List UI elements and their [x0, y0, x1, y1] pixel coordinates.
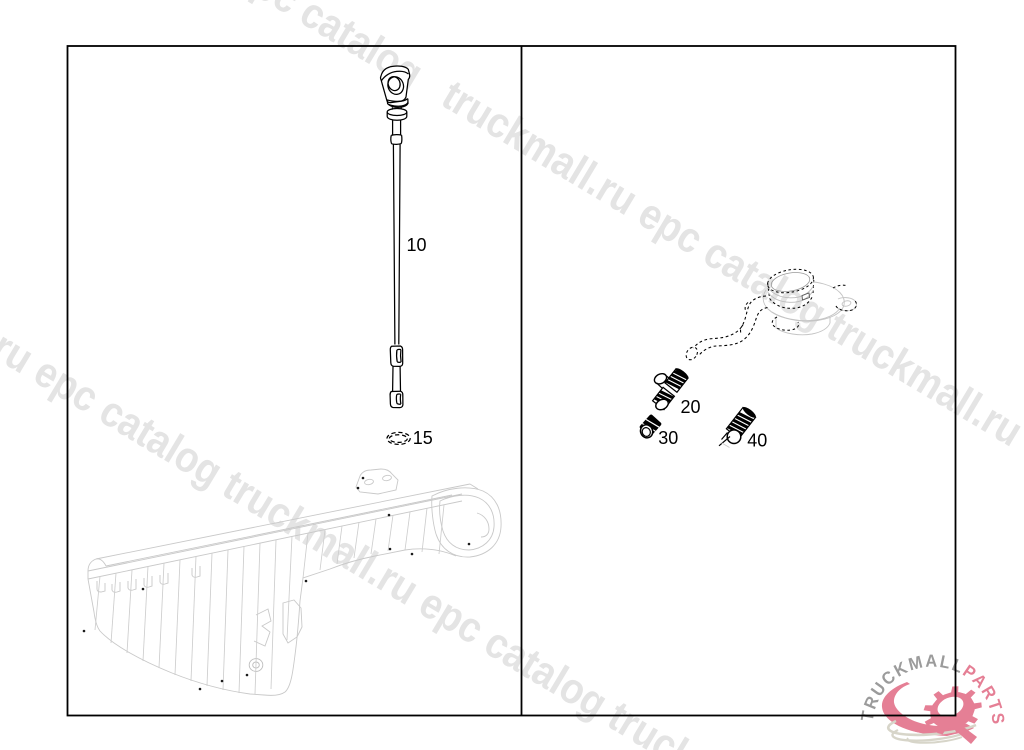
svg-text:10: 10 [407, 235, 427, 255]
svg-text:40: 40 [747, 431, 767, 451]
svg-text:15: 15 [413, 428, 433, 448]
svg-text:20: 20 [681, 397, 701, 417]
svg-text:30: 30 [658, 428, 678, 448]
